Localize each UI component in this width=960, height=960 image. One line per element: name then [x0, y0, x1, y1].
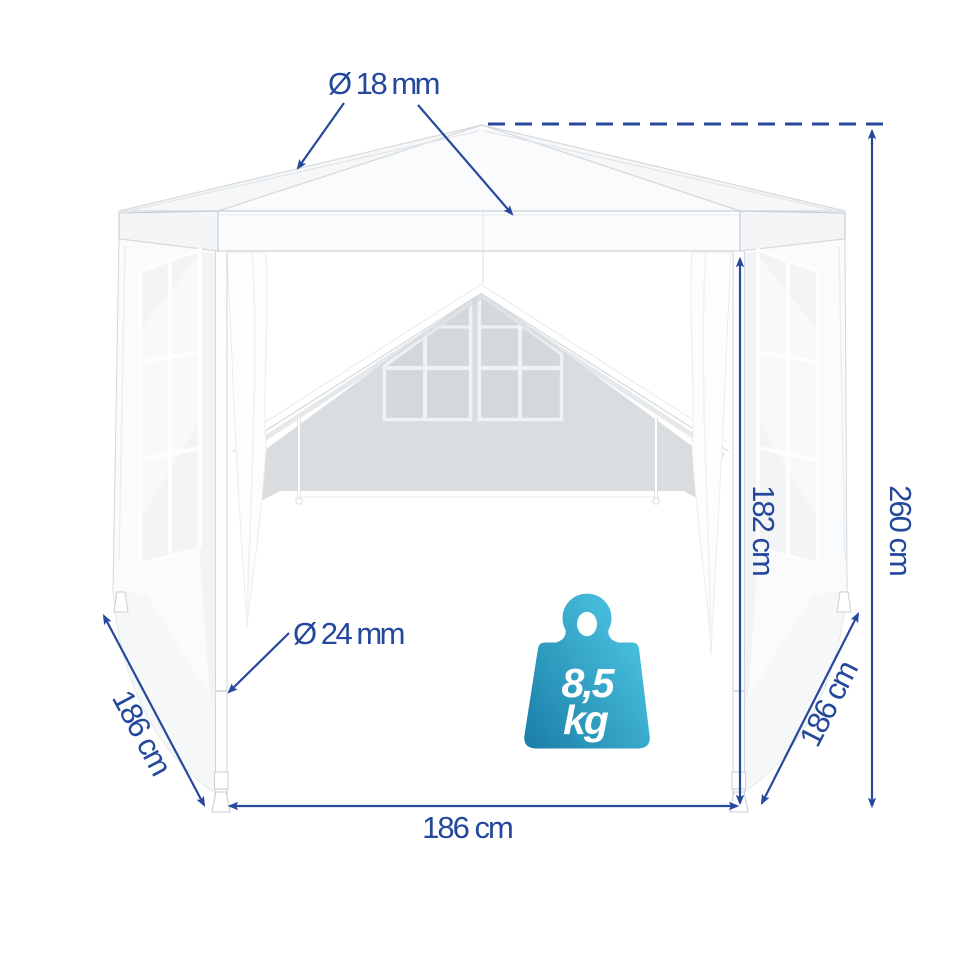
svg-text:kg: kg — [563, 697, 609, 743]
svg-text:Ø 24 mm: Ø 24 mm — [293, 616, 404, 651]
svg-text:186 cm: 186 cm — [422, 810, 512, 845]
svg-text:Ø 18 mm: Ø 18 mm — [328, 66, 439, 101]
svg-text:182 cm: 182 cm — [746, 485, 781, 575]
svg-text:260 cm: 260 cm — [883, 485, 918, 575]
